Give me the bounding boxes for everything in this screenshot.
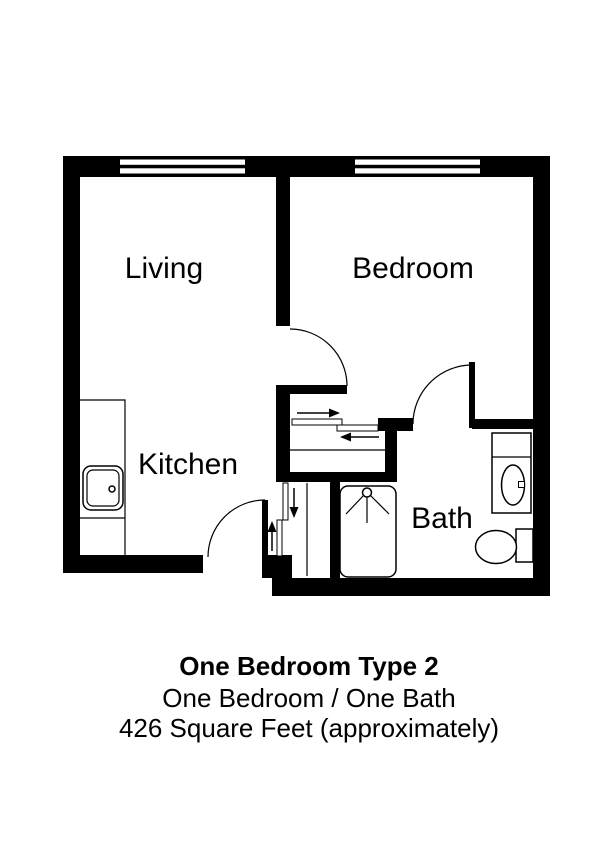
caption-title: One Bedroom Type 2 xyxy=(179,651,439,681)
sliding-door-panel xyxy=(283,483,288,520)
shower-stall xyxy=(340,486,396,577)
room-label-bedroom: Bedroom xyxy=(352,252,474,285)
kitchen-counter xyxy=(80,400,125,555)
bedroom-window xyxy=(355,156,480,177)
living-hall-door xyxy=(290,329,347,386)
hall-west-wall xyxy=(276,385,290,482)
window-line xyxy=(355,165,480,169)
slide-left-arrow xyxy=(340,433,379,442)
bath-door xyxy=(413,362,475,428)
shower-head-icon xyxy=(363,488,372,497)
living-bedroom-divider-wall xyxy=(276,177,290,326)
window-line xyxy=(355,174,480,178)
bath-door-stub-wall xyxy=(378,418,413,431)
entry-step-wall xyxy=(262,555,292,578)
bedroom-closet-bypass-doors xyxy=(290,409,385,451)
floorplan-page: Living Bedroom Kitchen Bath One Bedroom … xyxy=(0,0,613,866)
toilet-bowl xyxy=(476,531,517,564)
sliding-door-panel xyxy=(277,520,282,556)
vanity-faucet-icon xyxy=(519,482,525,488)
closet-shower-divider-wall xyxy=(330,482,340,578)
shower-basin xyxy=(340,486,396,577)
sliding-door-panel xyxy=(292,419,342,425)
door-swing-arc xyxy=(290,329,347,386)
room-label-bath: Bath xyxy=(411,502,473,535)
slide-down-arrow xyxy=(290,488,299,518)
sliding-door-panel xyxy=(337,425,378,431)
window-line xyxy=(355,156,480,160)
slide-up-arrow xyxy=(268,521,277,551)
door-leaf xyxy=(262,500,268,557)
toilet-tank xyxy=(516,529,533,562)
window-line xyxy=(120,156,245,160)
toilet xyxy=(476,529,534,564)
door-swing-arc xyxy=(413,365,472,424)
slide-right-arrow xyxy=(297,409,340,418)
caption: One Bedroom Type 2 One Bedroom / One Bat… xyxy=(119,651,499,743)
sink-drain-icon xyxy=(109,486,115,492)
bath-north-wall xyxy=(472,419,533,429)
room-label-kitchen: Kitchen xyxy=(138,448,238,481)
door-leaf xyxy=(469,362,475,428)
left-wall xyxy=(63,156,80,573)
kitchen-sink xyxy=(83,466,123,510)
floorplan-drawing: Living Bedroom Kitchen Bath One Bedroom … xyxy=(0,0,613,866)
caption-area: 426 Square Feet (approximately) xyxy=(119,713,499,743)
bottom-wall-right xyxy=(272,578,550,596)
window-line xyxy=(120,174,245,178)
right-wall xyxy=(533,156,550,596)
closet-floor-wall xyxy=(276,472,397,482)
window-line xyxy=(120,165,245,169)
bottom-wall-kitchen xyxy=(63,555,203,573)
living-window xyxy=(120,156,245,177)
caption-subtitle: One Bedroom / One Bath xyxy=(162,683,455,713)
door-swing-arc xyxy=(208,500,265,557)
room-label-living: Living xyxy=(125,252,203,285)
entry-door xyxy=(208,500,268,557)
vanity xyxy=(492,433,531,513)
